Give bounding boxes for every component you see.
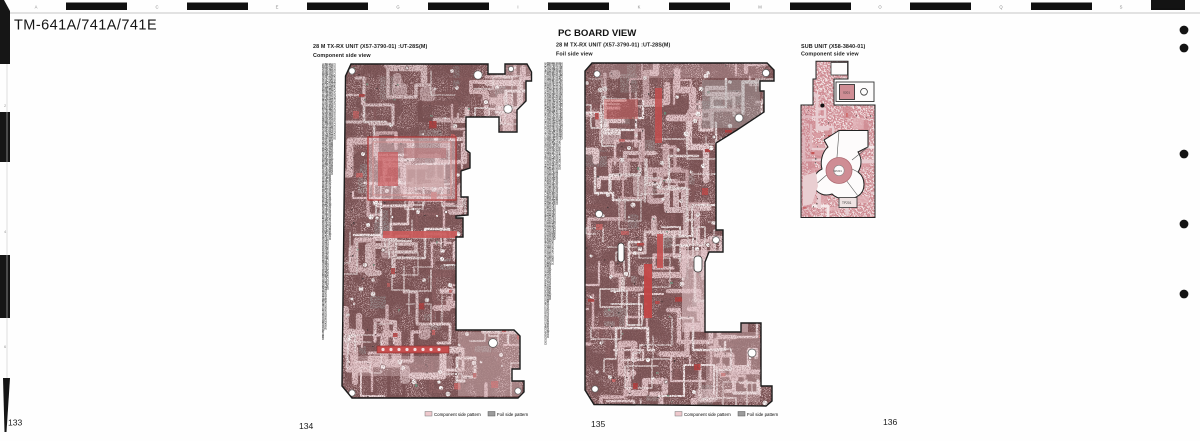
svg-text:28 M TX-RX UNIT (X57-3790-01): 28 M TX-RX UNIT (X57-3790-01) :UT-28S(M) [556, 43, 671, 49]
svg-text:6: 6 [4, 344, 7, 349]
svg-text:PC BOARD VIEW: PC BOARD VIEW [558, 28, 637, 39]
svg-text:Foil side view: Foil side view [556, 52, 593, 58]
svg-text:Component side pattern: Component side pattern [684, 412, 731, 417]
svg-text:Q: Q [999, 5, 1003, 10]
svg-text:K: K [638, 5, 641, 10]
svg-text:Foil side pattern: Foil side pattern [747, 412, 779, 417]
svg-text:Component side pattern: Component side pattern [434, 412, 481, 417]
svg-text:135: 135 [591, 419, 606, 429]
svg-text:S201: S201 [843, 91, 850, 95]
svg-text:G: G [396, 5, 399, 10]
svg-text:SP201: SP201 [834, 169, 843, 173]
svg-text:TM-641A/741A/741E: TM-641A/741A/741E [14, 18, 157, 34]
svg-text:134: 134 [299, 421, 314, 431]
svg-text:A: A [35, 5, 38, 10]
svg-text:E: E [276, 5, 279, 10]
svg-text:155133 IC4 Q13 155133 IC2,6 1S: 155133 IC4 Q13 155133 IC2,6 1SR35-100A 2… [334, 62, 337, 140]
svg-text:28 M TX-RX UNIT (X57-3790-01): 28 M TX-RX UNIT (X57-3790-01) :UT-28S(M) [313, 44, 428, 50]
svg-text:4: 4 [4, 229, 7, 234]
svg-text:Component side view: Component side view [801, 52, 859, 58]
svg-text:2: 2 [4, 103, 7, 108]
svg-text:I: I [517, 5, 518, 10]
svg-text:Component side view: Component side view [313, 53, 371, 59]
svg-text:O: O [878, 5, 882, 10]
svg-text:C: C [155, 5, 158, 10]
svg-text:TP201: TP201 [842, 201, 852, 205]
svg-text:136: 136 [883, 417, 898, 427]
svg-text:X1 1SR35-100A 2SC2712(Y) 2SC27: X1 1SR35-100A 2SC2712(Y) 2SC2712(Y) (X57… [561, 61, 564, 140]
svg-text:M: M [758, 5, 762, 10]
svg-text:S: S [1120, 5, 1123, 10]
svg-text:133: 133 [8, 418, 23, 428]
svg-text:Foil side pattern: Foil side pattern [497, 412, 529, 417]
svg-text:SUB UNIT (X58-3840-01): SUB UNIT (X58-3840-01) [801, 44, 865, 50]
